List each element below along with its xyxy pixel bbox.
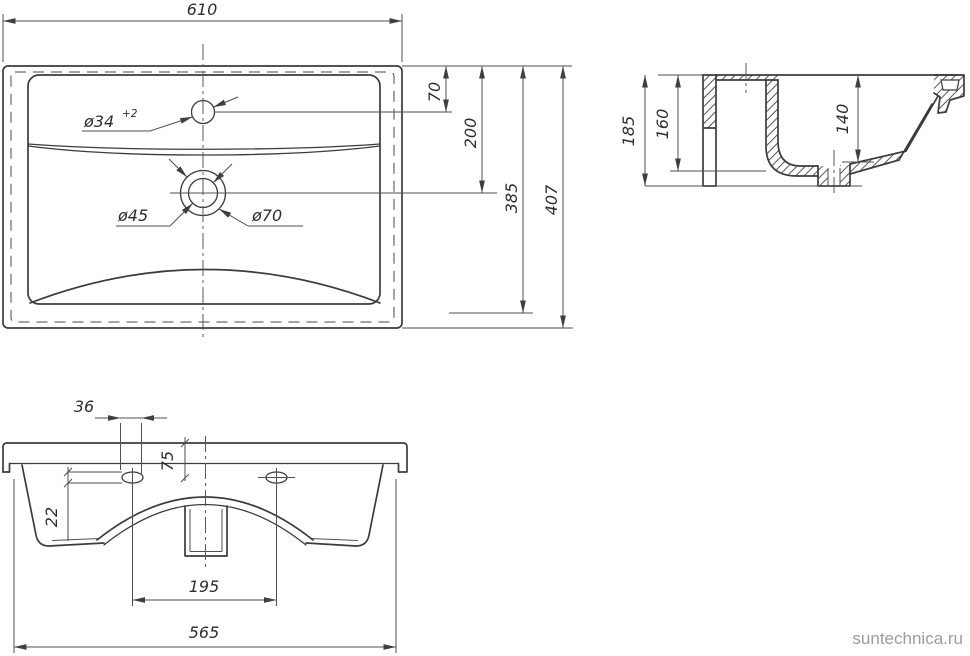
dim-label-160: 160: [653, 109, 672, 140]
dim-label-70: 70: [425, 82, 444, 102]
front-body-left: [22, 465, 104, 546]
watermark-text: suntechnica.ru: [852, 629, 963, 648]
front-rim-notch: [941, 80, 959, 90]
bowl-front-slope: [30, 270, 380, 304]
front-view: 36 75 22 195 565: [3, 397, 407, 653]
dim-195: 195: [133, 468, 277, 606]
dim-label-200: 200: [461, 118, 480, 149]
washbasin-technical-drawing: 610 70 200 385 407 ø34 +2: [0, 0, 970, 656]
label-faucet-tolerance: +2: [122, 108, 138, 120]
top-view: 610 70 200 385 407 ø34 +2: [3, 0, 573, 341]
dim-label-195: 195: [189, 577, 220, 596]
front-body-right: [306, 465, 383, 546]
dim-label-385: 385: [502, 183, 521, 214]
dim-label-22: 22: [42, 507, 61, 527]
dim-label-140: 140: [833, 104, 852, 135]
label-faucet-diameter: ø34: [83, 112, 114, 131]
hatch-back-wall: [703, 75, 716, 128]
label-drain-outer-diameter: ø70: [251, 206, 282, 225]
drawing-sheet: 610 70 200 385 407 ø34 +2: [0, 0, 970, 656]
section-front-wall-lines: [899, 96, 938, 160]
dim-label-565: 565: [189, 623, 220, 642]
dim-right-stack: 70 200 385 407: [402, 66, 573, 328]
dim-label-75: 75: [158, 451, 177, 471]
label-drain-inner-diameter: ø45: [117, 206, 148, 225]
shelf-edge-upper: [28, 144, 380, 149]
dim-label-407: 407: [542, 184, 561, 215]
dim-label-36: 36: [74, 397, 94, 416]
section-view: 185 160 140: [619, 63, 964, 197]
hatch-bowl-back-wall: [766, 80, 818, 176]
section-bowl-wall-inner: [778, 80, 818, 166]
dim-label-185: 185: [619, 116, 638, 147]
dim-label-610: 610: [187, 0, 218, 19]
front-slab-left-ear: [3, 464, 10, 473]
